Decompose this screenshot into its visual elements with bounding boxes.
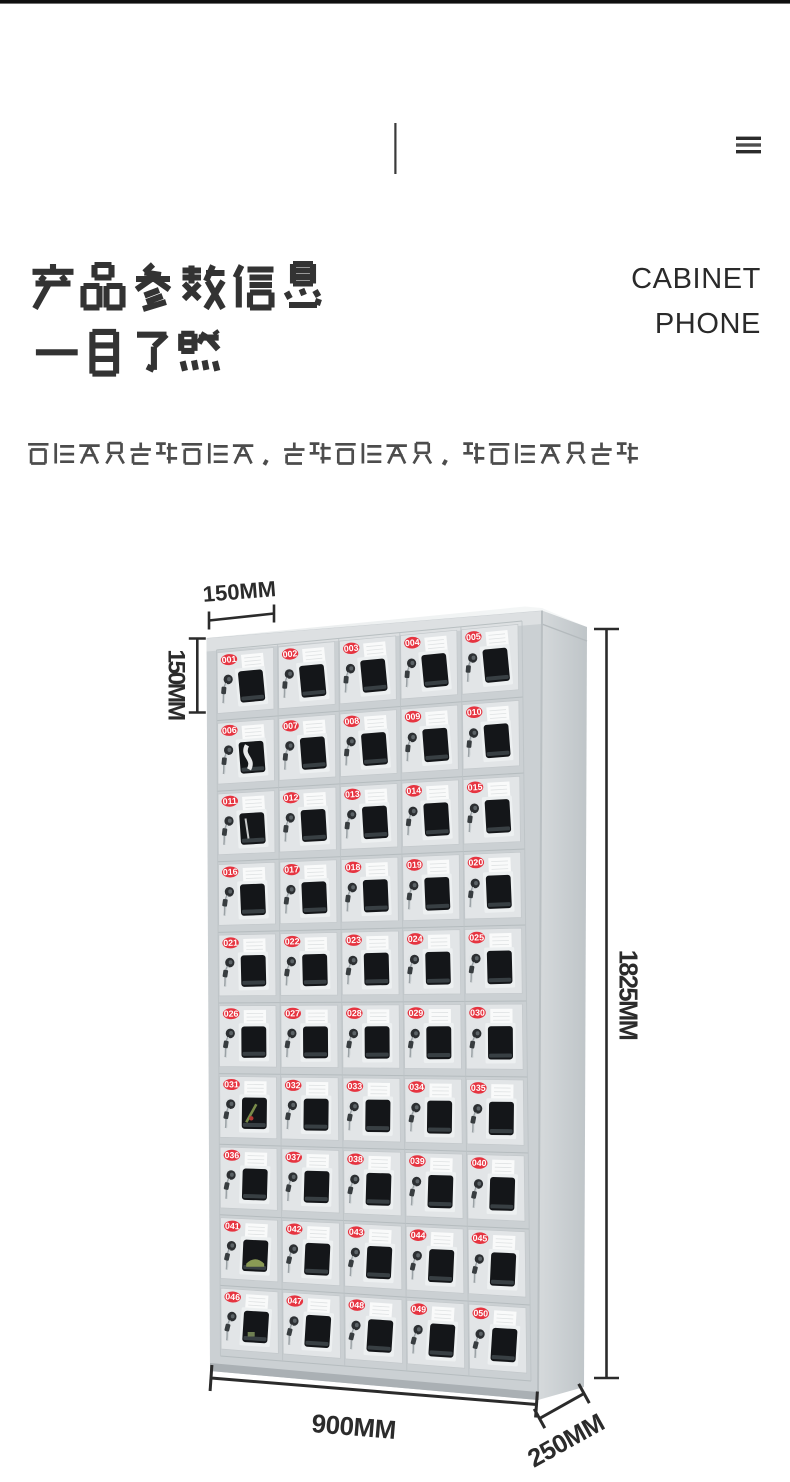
svg-text:016: 016: [223, 867, 238, 878]
svg-text:002: 002: [282, 648, 298, 659]
svg-text:032: 032: [286, 1080, 301, 1090]
svg-text:004: 004: [405, 637, 421, 648]
svg-text:022: 022: [285, 936, 300, 946]
svg-text:025: 025: [469, 932, 484, 942]
svg-text:040: 040: [472, 1158, 487, 1168]
svg-text:028: 028: [347, 1008, 362, 1018]
svg-text:031: 031: [224, 1079, 239, 1089]
svg-text:029: 029: [409, 1008, 424, 1018]
svg-text:013: 013: [345, 789, 360, 800]
svg-text:042: 042: [287, 1224, 302, 1235]
svg-text:015: 015: [467, 782, 482, 793]
svg-text:011: 011: [222, 796, 237, 807]
svg-text:041: 041: [225, 1221, 240, 1232]
svg-text:150MM: 150MM: [163, 649, 190, 719]
svg-text:024: 024: [408, 934, 423, 944]
svg-text:047: 047: [287, 1295, 302, 1306]
svg-text:PHONE: PHONE: [655, 308, 761, 340]
svg-text:039: 039: [410, 1156, 425, 1166]
svg-text:026: 026: [224, 1009, 239, 1019]
svg-text:CABINET: CABINET: [631, 263, 761, 295]
svg-text:021: 021: [223, 938, 238, 948]
svg-text:017: 017: [284, 864, 299, 875]
svg-text:038: 038: [348, 1154, 363, 1164]
svg-text:027: 027: [285, 1008, 300, 1018]
svg-text:018: 018: [346, 862, 361, 873]
svg-text:020: 020: [468, 857, 483, 868]
svg-text:008: 008: [344, 716, 360, 727]
svg-text:003: 003: [343, 643, 359, 654]
svg-text:034: 034: [409, 1082, 424, 1092]
svg-text:010: 010: [466, 707, 482, 718]
svg-text:035: 035: [471, 1083, 486, 1093]
svg-text:037: 037: [286, 1152, 301, 1162]
svg-text:043: 043: [349, 1227, 364, 1238]
svg-text:030: 030: [470, 1008, 485, 1018]
svg-text:019: 019: [407, 859, 422, 870]
svg-text:036: 036: [224, 1150, 239, 1160]
svg-text:033: 033: [348, 1081, 363, 1091]
svg-text:049: 049: [411, 1304, 426, 1315]
svg-text:009: 009: [405, 711, 421, 722]
svg-text:1825MM: 1825MM: [614, 950, 642, 1040]
svg-text:048: 048: [349, 1300, 364, 1311]
svg-text:005: 005: [466, 631, 482, 642]
svg-text:050: 050: [473, 1308, 488, 1319]
svg-text:046: 046: [225, 1291, 240, 1302]
svg-text:023: 023: [346, 935, 361, 945]
svg-text:044: 044: [411, 1230, 426, 1241]
svg-text:007: 007: [283, 720, 299, 731]
svg-text:006: 006: [222, 725, 238, 736]
svg-text:014: 014: [406, 785, 421, 796]
svg-text:045: 045: [472, 1233, 487, 1244]
svg-text:012: 012: [283, 792, 298, 803]
svg-text:001: 001: [221, 654, 237, 665]
